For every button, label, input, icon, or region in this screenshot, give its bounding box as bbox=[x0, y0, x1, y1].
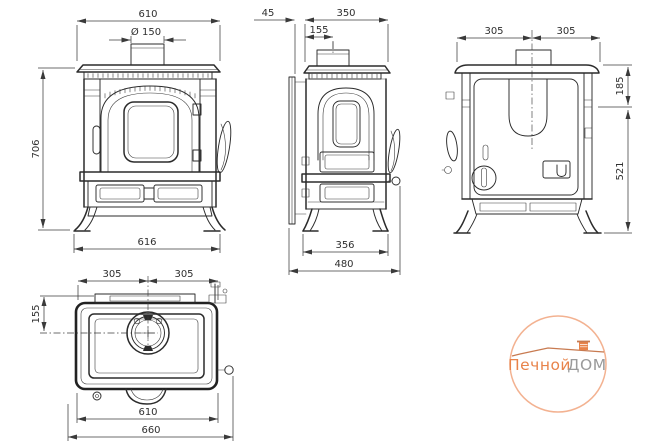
front-door-window bbox=[124, 102, 178, 162]
side-top-plate bbox=[304, 66, 390, 79]
dim-front-height: 706 bbox=[31, 139, 42, 158]
watermark-roof bbox=[512, 348, 604, 356]
dim-top-plate-width: 610 bbox=[138, 407, 157, 418]
front-side-handle bbox=[215, 120, 234, 173]
dim-top-flue-offset: 155 bbox=[31, 304, 42, 323]
dim-rear-body-height: 521 bbox=[615, 161, 626, 180]
front-view: 610 Ø 150 706 616 bbox=[31, 9, 233, 253]
side-heat-shield bbox=[289, 77, 306, 224]
dim-side-total-depth: 480 bbox=[334, 259, 353, 270]
rear-air-control bbox=[472, 166, 496, 190]
rear-dimensions: 305 305 185 521 bbox=[457, 26, 632, 233]
side-legs bbox=[303, 209, 388, 231]
dim-side-flue-offset: 155 bbox=[309, 25, 328, 36]
dim-side-top-depth: 350 bbox=[336, 8, 355, 19]
rear-side-view: 305 305 185 521 bbox=[442, 26, 632, 233]
watermark-chimney bbox=[579, 342, 588, 350]
dim-top-total-width: 660 bbox=[141, 425, 160, 436]
front-legs bbox=[74, 207, 225, 231]
front-flue-stub bbox=[131, 44, 164, 65]
rear-flue-stub bbox=[516, 30, 551, 150]
front-top-plate bbox=[77, 65, 220, 79]
dim-side-feet-depth: 356 bbox=[335, 240, 354, 251]
top-side-knob bbox=[217, 366, 233, 374]
watermark-text-secondary: ДОМ bbox=[567, 356, 606, 374]
stove-technical-drawing: 610 Ø 150 706 616 bbox=[0, 0, 664, 447]
dim-rear-half-width-right: 305 bbox=[556, 26, 575, 37]
dim-top-half-width-left: 305 bbox=[102, 269, 121, 280]
dim-rear-top-height: 185 bbox=[615, 76, 626, 95]
side-view: 45 350 155 356 480 bbox=[254, 8, 402, 275]
dim-front-flue-diameter: Ø 150 bbox=[131, 26, 161, 38]
rear-hinge-tab bbox=[446, 92, 454, 99]
rear-top-plate bbox=[455, 65, 599, 73]
rear-flue-channel bbox=[509, 79, 547, 136]
dim-rear-half-width-left: 305 bbox=[484, 26, 503, 37]
rear-base bbox=[462, 199, 592, 214]
front-door-latch bbox=[93, 126, 100, 154]
side-dimensions: 45 350 155 356 480 bbox=[254, 8, 400, 275]
front-ash-section bbox=[80, 172, 220, 216]
technical-drawing-canvas: 610 Ø 150 706 616 bbox=[0, 0, 664, 447]
top-back-edge bbox=[95, 282, 227, 303]
dim-front-top-width: 610 bbox=[138, 9, 157, 20]
top-door-handle bbox=[93, 389, 166, 404]
top-view: 305 305 155 610 660 bbox=[31, 269, 233, 441]
side-body bbox=[302, 79, 390, 209]
watermark-text-primary: Печной bbox=[508, 356, 571, 374]
dim-front-feet-width: 616 bbox=[137, 237, 156, 248]
dim-top-half-width-right: 305 bbox=[174, 269, 193, 280]
top-dimensions: 305 305 155 610 660 bbox=[31, 269, 233, 441]
rear-handle bbox=[445, 130, 459, 161]
watermark-logo: Печной ДОМ bbox=[508, 316, 607, 412]
rear-body bbox=[442, 73, 592, 199]
dim-side-shield-gap: 45 bbox=[262, 8, 275, 19]
side-air-knob bbox=[392, 177, 400, 185]
side-handle bbox=[386, 129, 403, 185]
side-door-window bbox=[333, 101, 360, 147]
